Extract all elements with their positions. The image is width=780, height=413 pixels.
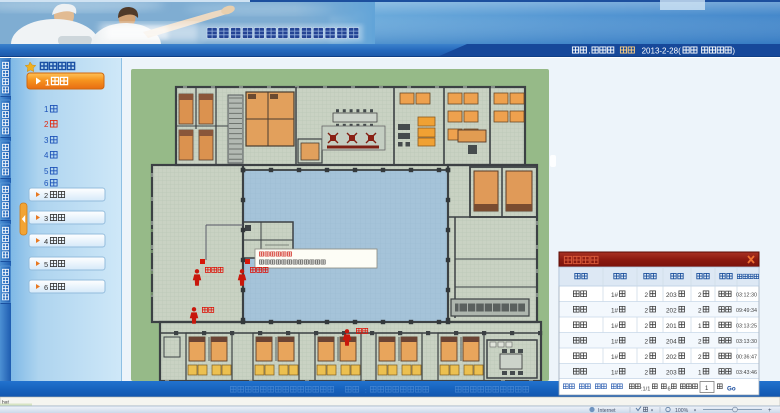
- svg-text:2: 2: [698, 338, 702, 345]
- svg-text:204: 204: [666, 338, 677, 345]
- svg-text::1/1: :1/1: [641, 387, 650, 393]
- svg-text:1: 1: [45, 78, 50, 88]
- svg-text:): ): [732, 47, 735, 56]
- svg-text:2013-2-28(: 2013-2-28(: [642, 47, 681, 56]
- svg-text:2: 2: [645, 338, 649, 345]
- svg-text:2: 2: [698, 354, 702, 361]
- svg-text:00:36:47: 00:36:47: [736, 354, 757, 360]
- svg-text:6: 6: [668, 387, 671, 393]
- svg-text:5: 5: [44, 260, 48, 269]
- svg-text:1#: 1#: [611, 354, 619, 361]
- svg-text:Go: Go: [727, 386, 736, 393]
- svg-text:6: 6: [44, 283, 48, 292]
- svg-text:5: 5: [44, 167, 49, 176]
- svg-text:1: 1: [698, 323, 702, 330]
- svg-text:201: 201: [666, 323, 677, 330]
- svg-text:1: 1: [44, 105, 49, 114]
- svg-text:1#: 1#: [611, 292, 619, 299]
- svg-text:100%: 100%: [675, 408, 689, 413]
- svg-text:2: 2: [44, 191, 48, 200]
- svg-text:2: 2: [645, 323, 649, 330]
- svg-text:1#: 1#: [611, 307, 619, 314]
- svg-text:1#: 1#: [611, 338, 619, 345]
- svg-text:2: 2: [698, 307, 702, 314]
- svg-text:03:43:46: 03:43:46: [736, 370, 757, 376]
- svg-text:2: 2: [645, 292, 649, 299]
- svg-text:2: 2: [645, 369, 649, 376]
- svg-text:▾: ▾: [694, 408, 696, 413]
- svg-text:03:12:30: 03:12:30: [736, 292, 757, 298]
- svg-text:2: 2: [698, 292, 702, 299]
- svg-text:6: 6: [44, 179, 49, 188]
- svg-text:2: 2: [645, 307, 649, 314]
- svg-text:+: +: [768, 408, 772, 413]
- svg-text:,: ,: [589, 48, 591, 55]
- svg-text:▾: ▾: [651, 408, 653, 413]
- svg-text:202: 202: [666, 307, 677, 314]
- svg-text:203: 203: [666, 292, 677, 299]
- svg-text:3: 3: [44, 136, 49, 145]
- svg-text:09:49:34: 09:49:34: [736, 308, 757, 314]
- svg-text:202: 202: [666, 354, 677, 361]
- svg-text:2: 2: [44, 120, 49, 129]
- svg-text:1#: 1#: [611, 323, 619, 330]
- svg-text:1#: 1#: [611, 369, 619, 376]
- svg-text:03:13:25: 03:13:25: [736, 323, 757, 329]
- svg-text:4: 4: [44, 237, 48, 246]
- svg-text:1: 1: [698, 369, 702, 376]
- svg-text:3: 3: [44, 214, 48, 223]
- svg-text:03:13:30: 03:13:30: [736, 339, 757, 345]
- svg-text:203: 203: [666, 369, 677, 376]
- svg-text:2: 2: [645, 354, 649, 361]
- svg-text:Internet: Internet: [598, 408, 616, 413]
- svg-text:4: 4: [44, 151, 49, 160]
